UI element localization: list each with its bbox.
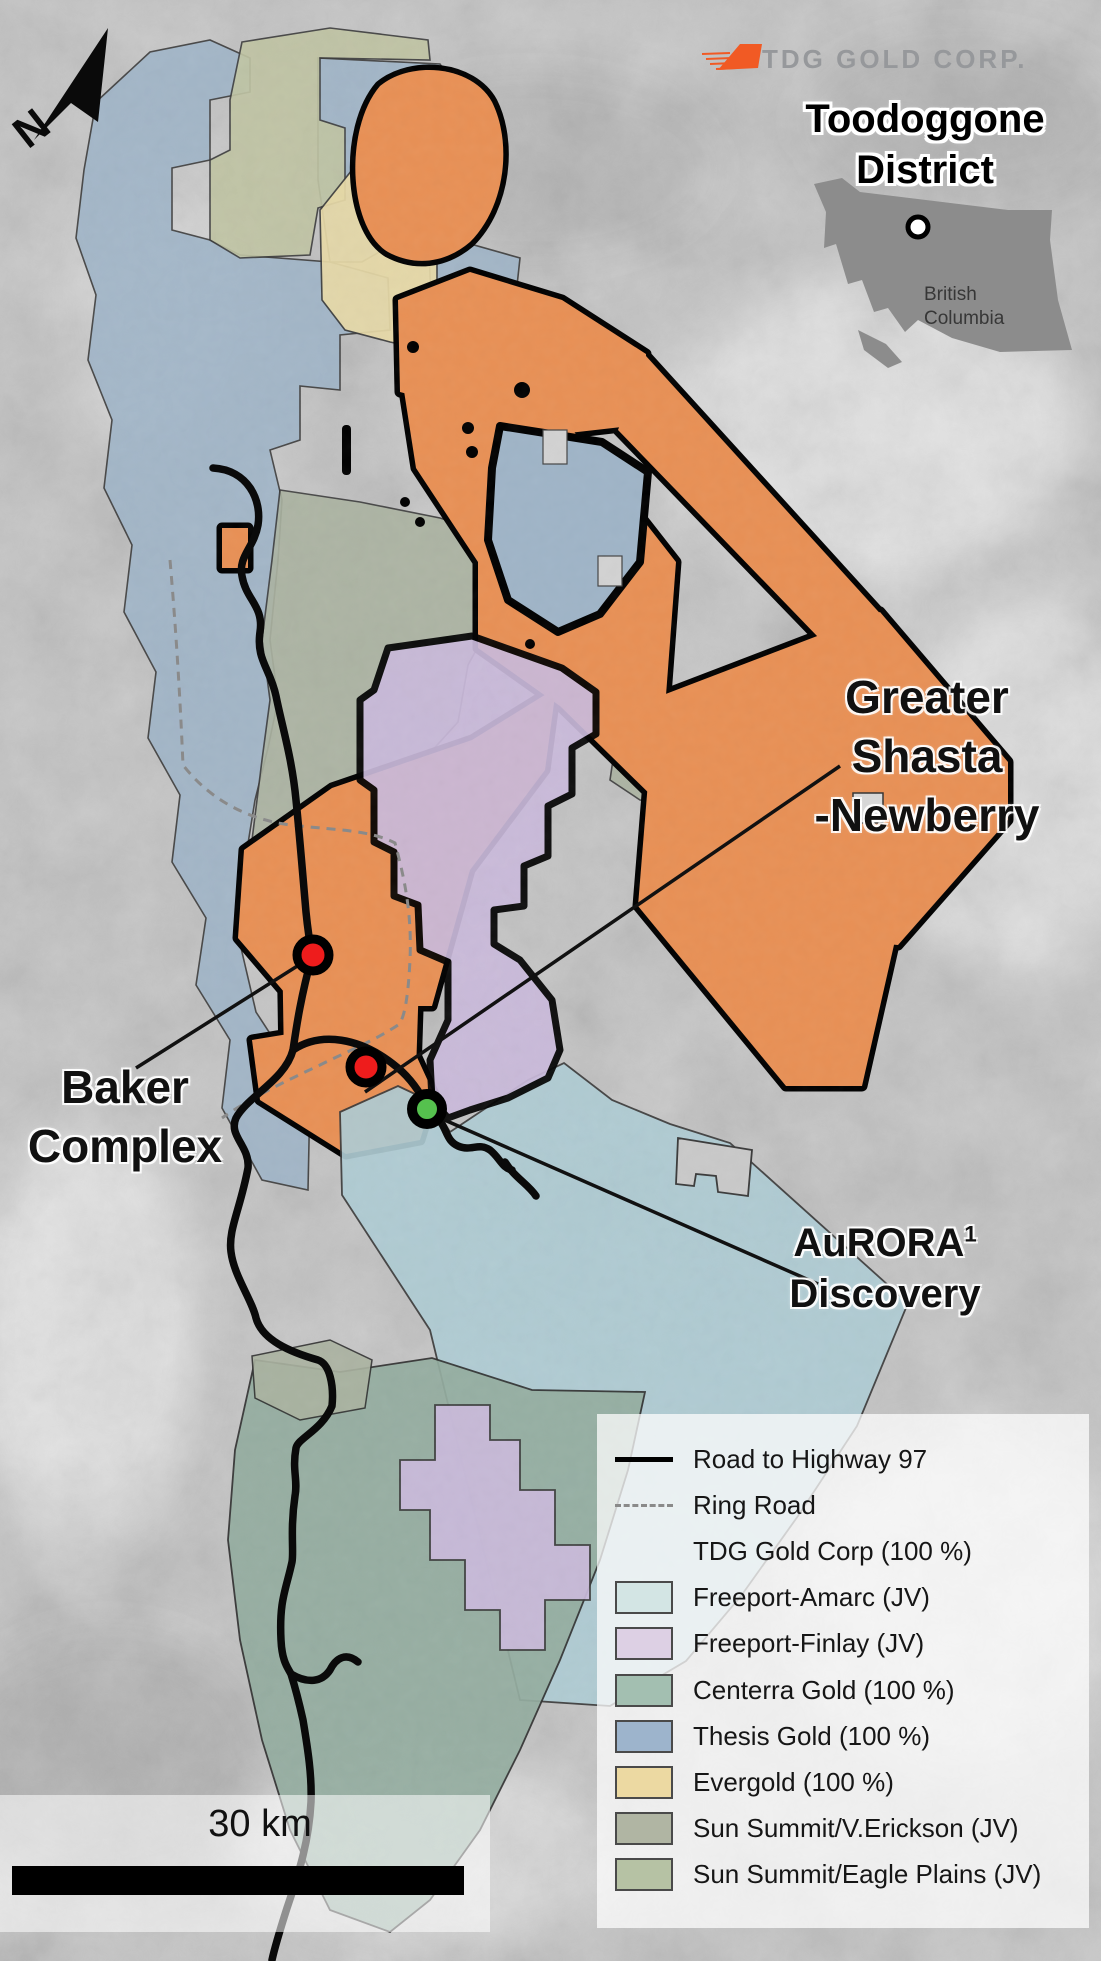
legend-row-evergold: Evergold (100 %) [615,1759,1089,1805]
legend: Road to Highway 97 Ring Road TDG Gold Co… [597,1414,1089,1928]
legend-row-road: Road to Highway 97 [615,1436,1089,1482]
scale-label: 30 km [160,1803,360,1846]
legend-swatch [615,1581,673,1614]
legend-swatch [615,1858,673,1891]
label-baker-complex: Baker Complex [10,1058,240,1176]
legend-swatch [615,1627,673,1660]
north-arrow: N [0,0,160,185]
legend-row-thesis: Thesis Gold (100 %) [615,1713,1089,1759]
inset-title: Toodoggone District [775,94,1075,196]
tdg-logo-text: TDG GOLD CORP. [762,44,1027,75]
inset-province-label: British Columbia [924,283,1004,331]
scale-bar-rule [12,1866,464,1895]
label-greater-shasta-newberry: Greater Shasta -Newberry [742,668,1101,845]
district-location-dot [908,217,928,237]
scale-bar: 30 km [0,1795,490,1932]
legend-row-sun-summit-erickson: Sun Summit/V.Erickson (JV) [615,1806,1089,1852]
legend-swatch [615,1812,673,1845]
marker-baker-north [297,939,329,971]
tdg-logo-swoosh [700,38,764,78]
map-canvas: TDG GOLD CORP. N Toodoggone District Bri… [0,0,1101,1961]
legend-row-freeport-amarc: Freeport-Amarc (JV) [615,1575,1089,1621]
legend-swatch [615,1766,673,1799]
legend-swatch [615,1720,673,1753]
legend-row-centerra: Centerra Gold (100 %) [615,1667,1089,1713]
legend-swatch [615,1674,673,1707]
legend-row-tdg: TDG Gold Corp (100 %) [615,1528,1089,1574]
label-aurora-discovery: AuRORA1 Discovery [755,1218,1015,1320]
legend-row-ring-road: Ring Road [615,1482,1089,1528]
marker-aurora-discovery [412,1094,442,1124]
legend-solid-line-sample [615,1457,673,1462]
legend-row-sun-summit-eagle-plains: Sun Summit/Eagle Plains (JV) [615,1852,1089,1898]
legend-row-freeport-finlay: Freeport-Finlay (JV) [615,1621,1089,1667]
marker-baker-south [350,1051,382,1083]
legend-dashed-line-sample [615,1504,673,1507]
tdg-logo: TDG GOLD CORP. [700,38,1080,80]
